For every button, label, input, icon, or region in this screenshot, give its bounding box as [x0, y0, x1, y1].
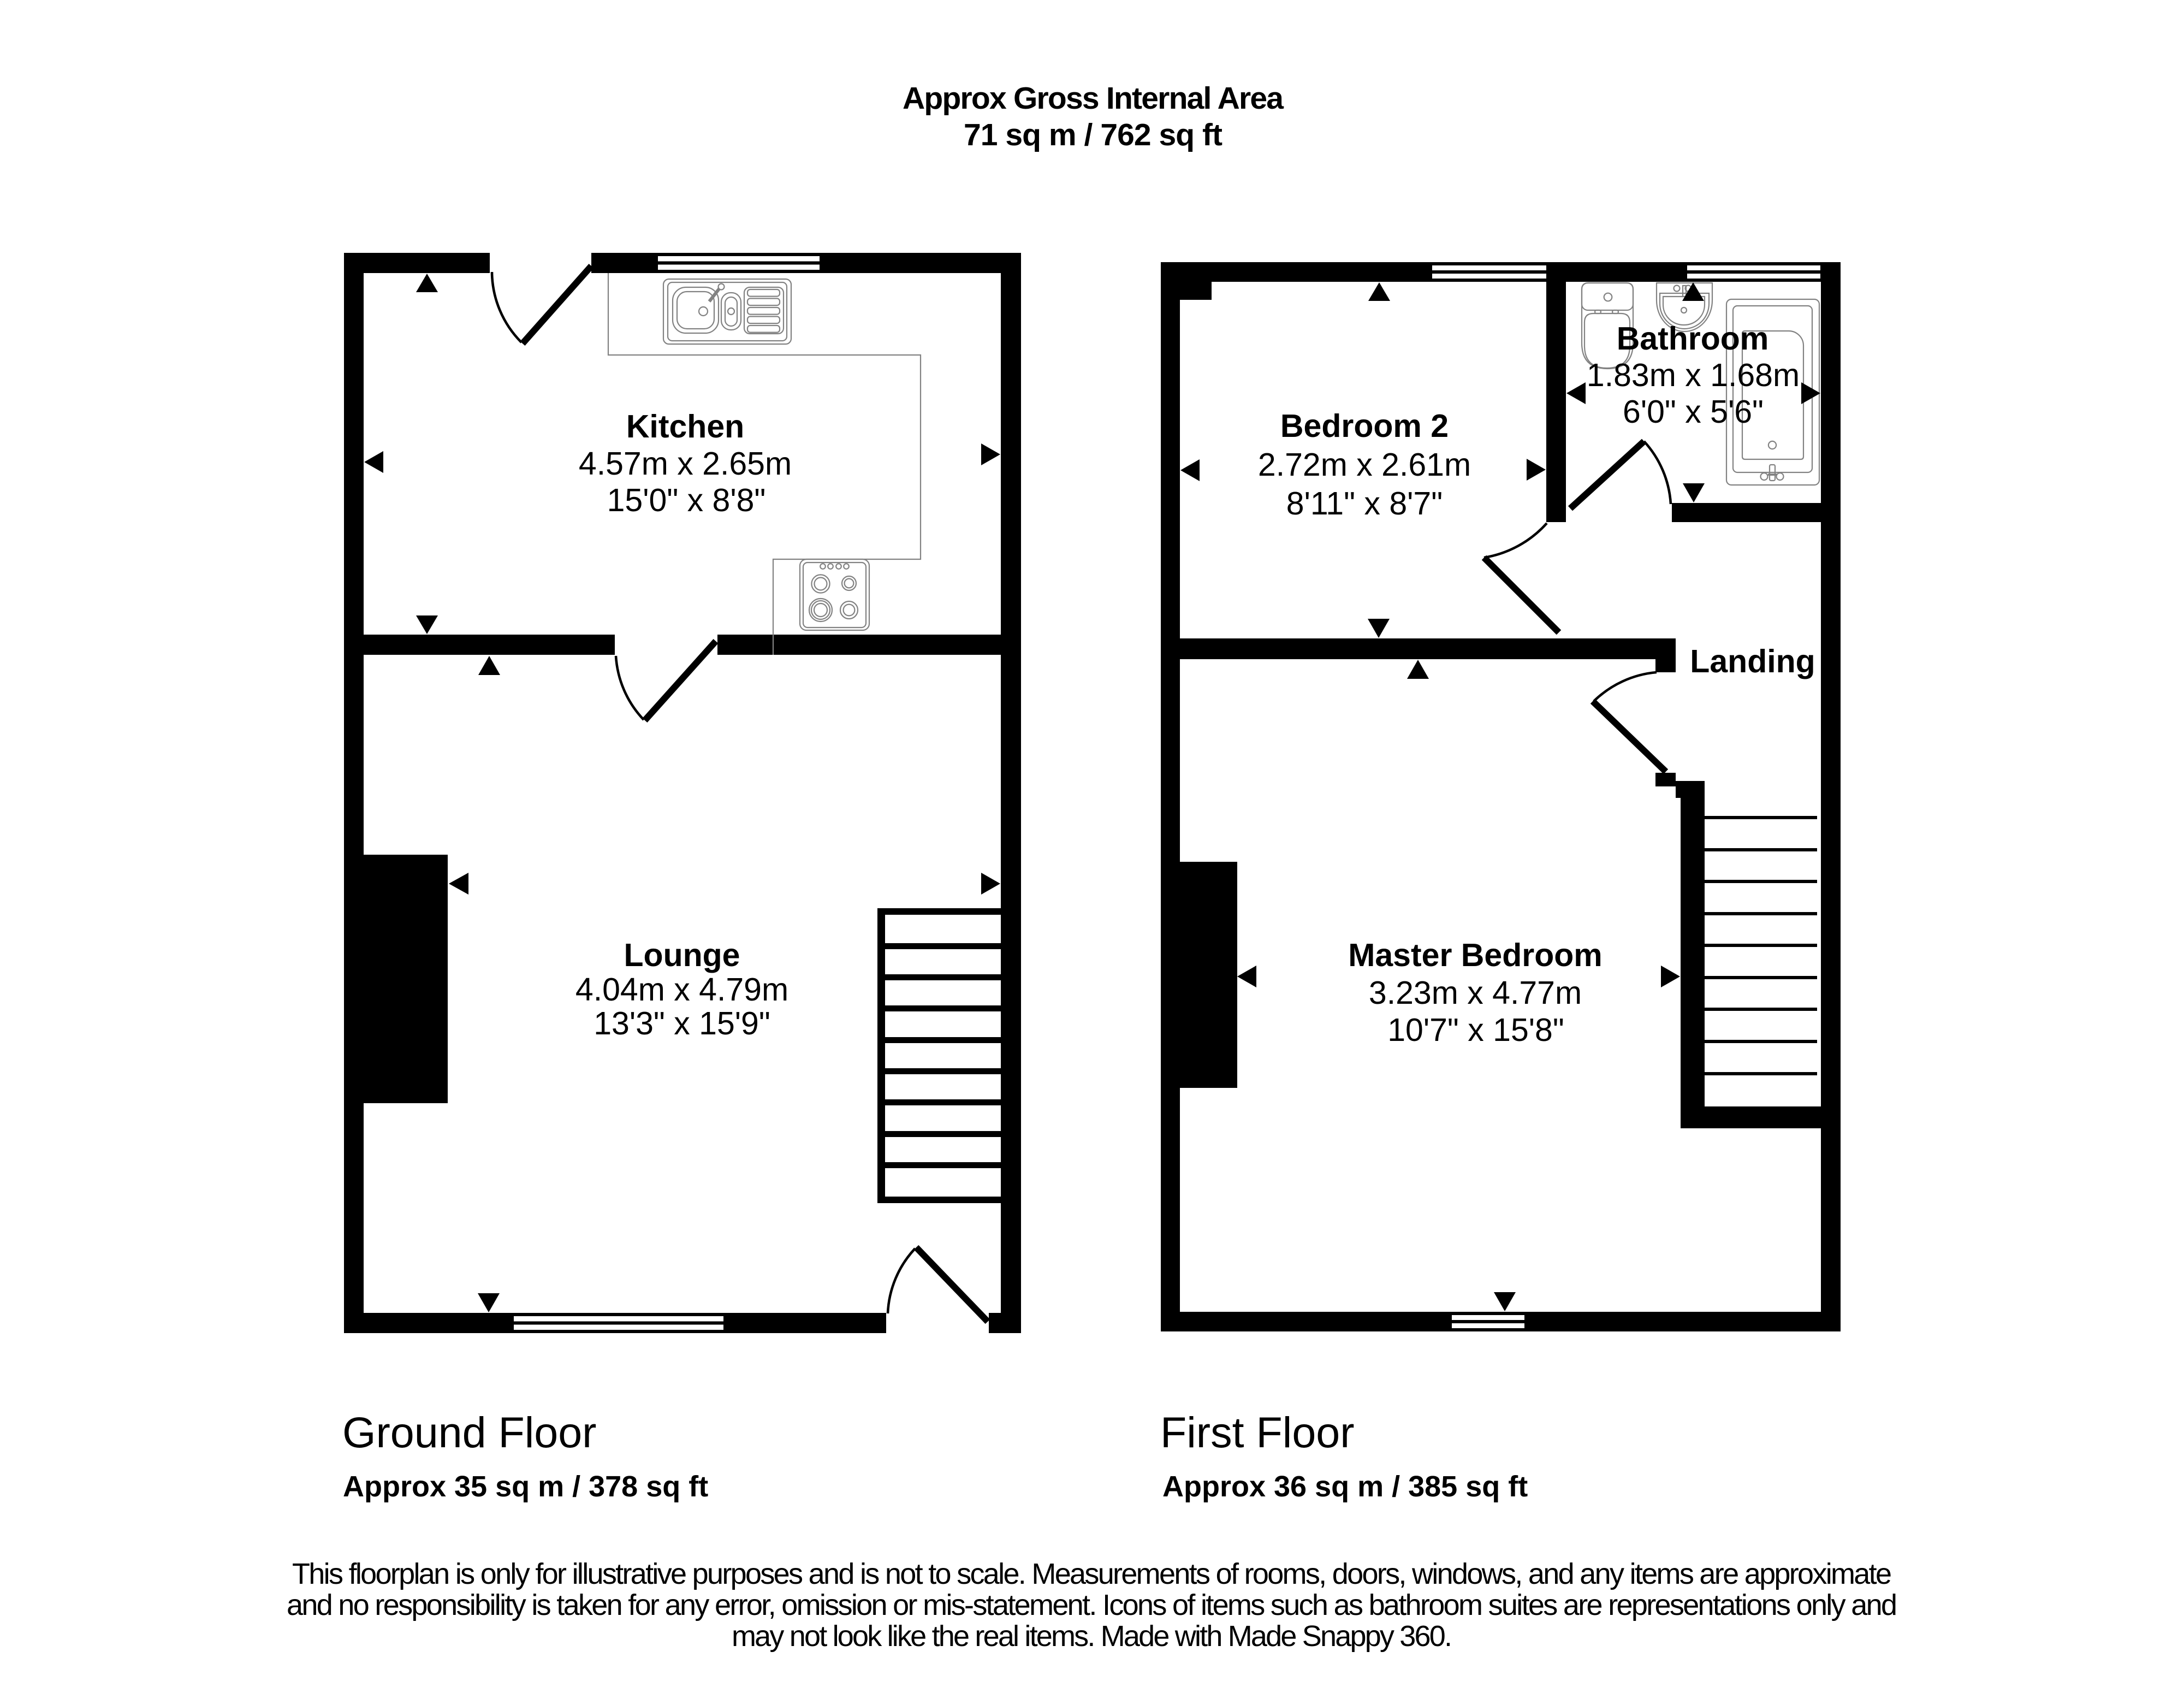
svg-text:Master Bedroom: Master Bedroom — [1348, 937, 1603, 973]
svg-text:Kitchen: Kitchen — [626, 409, 744, 445]
svg-text:Bathroom: Bathroom — [1617, 321, 1769, 357]
svg-text:8'11" x 8'7": 8'11" x 8'7" — [1286, 486, 1443, 522]
svg-text:4.04m x 4.79m: 4.04m x 4.79m — [575, 972, 788, 1008]
svg-text:This floorplan is only for ill: This floorplan is only for illustrative … — [292, 1558, 1892, 1590]
svg-text:Approx 36 sq m / 385 sq ft: Approx 36 sq m / 385 sq ft — [1162, 1470, 1528, 1503]
svg-text:Lounge: Lounge — [624, 937, 740, 973]
svg-text:and no responsibility is taken: and no responsibility is taken for any e… — [287, 1589, 1897, 1621]
svg-text:Approx Gross Internal Area: Approx Gross Internal Area — [903, 81, 1284, 116]
svg-text:10'7" x 15'8": 10'7" x 15'8" — [1387, 1012, 1564, 1048]
svg-text:2.72m x 2.61m: 2.72m x 2.61m — [1258, 447, 1471, 483]
svg-text:Ground Floor: Ground Floor — [342, 1408, 596, 1457]
svg-text:15'0" x 8'8": 15'0" x 8'8" — [607, 482, 766, 518]
svg-text:Bedroom 2: Bedroom 2 — [1280, 408, 1449, 444]
svg-text:6'0" x 5'6": 6'0" x 5'6" — [1623, 394, 1764, 430]
svg-text:may not look like the real ite: may not look like the real items. Made w… — [732, 1620, 1452, 1653]
svg-text:1.83m x 1.68m: 1.83m x 1.68m — [1587, 357, 1800, 393]
svg-text:3.23m x 4.77m: 3.23m x 4.77m — [1369, 975, 1582, 1011]
svg-text:Landing: Landing — [1690, 643, 1815, 679]
svg-text:71 sq m / 762 sq ft: 71 sq m / 762 sq ft — [964, 117, 1222, 152]
svg-text:Approx 35 sq m / 378 sq ft: Approx 35 sq m / 378 sq ft — [343, 1470, 708, 1503]
svg-text:4.57m x 2.65m: 4.57m x 2.65m — [579, 446, 792, 482]
svg-text:First Floor: First Floor — [1160, 1408, 1355, 1457]
svg-text:13'3" x 15'9": 13'3" x 15'9" — [594, 1005, 770, 1041]
